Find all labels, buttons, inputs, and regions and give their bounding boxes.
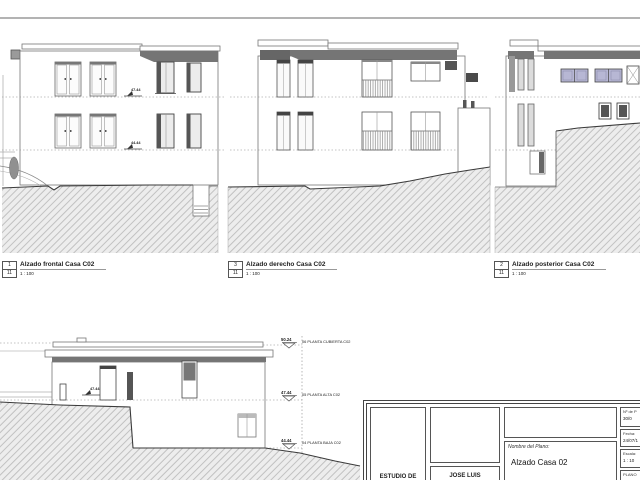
- view-number: 2: [495, 262, 508, 270]
- window-balcony-lower-1: [362, 112, 392, 150]
- window-wide-upper: [411, 62, 440, 81]
- date-cell: Fecha: 24/07/1: [620, 429, 640, 447]
- terrain-hatch: [2, 185, 218, 253]
- title-block-inner: ESTUDIO DE JOSE LUIS Nombre del Plano: A…: [366, 403, 640, 480]
- level-value: 47.44: [90, 387, 100, 391]
- railing: [363, 132, 392, 150]
- architect-name: JOSE LUIS: [431, 473, 499, 479]
- window-tall-lower-2: [298, 112, 313, 150]
- sheet-number-value: 30/0: [621, 414, 640, 421]
- view-label-derecho: 3 11 Alzado derecho Casa C02 1 : 100: [228, 261, 337, 278]
- window-french-lower-right: [90, 114, 116, 148]
- window-balcony-lower-2: [411, 112, 440, 150]
- plan-name: Alzado Casa 02: [511, 458, 616, 467]
- date-value: 24/07/1: [621, 436, 640, 443]
- level-value: 47.44: [281, 390, 292, 395]
- level-value: 47.44: [131, 88, 141, 92]
- view-title: Alzado frontal Casa C02: [20, 261, 106, 270]
- window-tall-upper-2: [298, 60, 313, 97]
- view-title: Alzado derecho Casa C02: [246, 261, 337, 270]
- logo-cell: [430, 407, 500, 463]
- window-tall-lower-1: [277, 112, 290, 150]
- elevation-section: 47.44 50.24 06 PLANTA CUBIERTA C02 47.44…: [0, 336, 360, 480]
- window-tall-upper-1: [277, 60, 290, 97]
- view-sheet-total: 11: [229, 270, 242, 277]
- window-sash: [627, 66, 639, 84]
- view-number-box: 3 11: [228, 261, 243, 278]
- window-tall: [182, 361, 197, 398]
- drawing-sheet: 47.44 44.44: [0, 0, 640, 480]
- roof-underside: [52, 357, 266, 362]
- level-marker-cubierta: 50.24 06 PLANTA CUBIERTA C02: [281, 337, 350, 348]
- window-slit: [528, 104, 534, 146]
- window-tinted-a: [561, 69, 588, 82]
- view-number: 3: [229, 262, 242, 270]
- level-value: 44.44: [131, 141, 141, 145]
- level-label: 04 PLANTA BAJA C02: [302, 440, 341, 445]
- window-french-lower-left: [55, 114, 81, 148]
- elevation-frontal: 47.44 44.44: [0, 44, 224, 253]
- view-number: 1: [3, 262, 16, 270]
- view-number-box: 1 11: [2, 261, 17, 278]
- architect-cell: JOSE LUIS: [430, 466, 500, 480]
- scale-value: 1 : 10: [621, 456, 640, 463]
- level-marker-alta: 47.44 05 PLANTA ALTA C02: [281, 390, 340, 401]
- level-label: 05 PLANTA ALTA C02: [302, 392, 340, 397]
- sheet-number-cell: Nº de P 30/0: [620, 407, 640, 427]
- level-value: 44.44: [281, 438, 292, 443]
- view-scale: 1 : 100: [512, 271, 606, 276]
- door: [100, 366, 116, 400]
- view-title: Alzado posterior Casa C02: [512, 261, 606, 270]
- view-label-frontal: 1 11 Alzado frontal Casa C02 1 : 100: [2, 261, 106, 278]
- window-slit: [518, 104, 524, 146]
- level-value: 50.24: [281, 337, 292, 342]
- elevation-derecho: [228, 40, 490, 253]
- roof-fascia: [544, 51, 640, 59]
- plan-name-label: Nombre del Plano:: [505, 442, 616, 450]
- window-small-dark-b: [617, 103, 629, 119]
- view-label-posterior: 2 11 Alzado posterior Casa C02 1 : 100: [494, 261, 606, 278]
- post: [60, 384, 66, 400]
- window-balcony-upper: [362, 60, 392, 97]
- level-label: 06 PLANTA CUBIERTA C02: [302, 339, 350, 344]
- studio-cell: ESTUDIO DE: [370, 407, 426, 480]
- view-scale: 1 : 100: [20, 271, 106, 276]
- railing: [363, 81, 392, 97]
- post: [127, 372, 133, 400]
- plano-label: PLANO: [621, 471, 640, 477]
- studio-name: ESTUDIO DE: [371, 474, 425, 480]
- shrub: [10, 157, 19, 179]
- window-french-upper-left: [55, 62, 81, 96]
- window-small: [238, 414, 256, 437]
- railing: [412, 132, 440, 150]
- title-block: ESTUDIO DE JOSE LUIS Nombre del Plano: A…: [363, 400, 640, 480]
- view-sheet-total: 11: [3, 270, 16, 277]
- window-slit: [518, 59, 524, 90]
- scale-cell: Escala: 1 : 10: [620, 449, 640, 468]
- window-small-dark-a: [599, 103, 611, 119]
- roof-fascia: [140, 51, 218, 62]
- window-dark-lower-b: [187, 114, 201, 148]
- elevation-posterior: [495, 40, 640, 253]
- view-sheet-total: 11: [495, 270, 508, 277]
- plan-name-cell: Nombre del Plano: Alzado Casa 02: [504, 441, 617, 480]
- window-dark-upper-b: [187, 63, 201, 92]
- window-french-upper-right: [90, 62, 116, 96]
- window-slit: [528, 59, 534, 90]
- project-cell: [504, 407, 617, 438]
- view-scale: 1 : 100: [246, 271, 337, 276]
- plano-cell: PLANO: [620, 470, 640, 480]
- window-tinted-b: [595, 69, 622, 82]
- chimney: [466, 73, 478, 82]
- view-number-box: 2 11: [494, 261, 509, 278]
- window-dark-lower-a: [157, 114, 174, 148]
- window-dark-upper-a: [155, 62, 176, 94]
- level-marker-baja: 44.44 04 PLANTA BAJA C02: [281, 438, 341, 449]
